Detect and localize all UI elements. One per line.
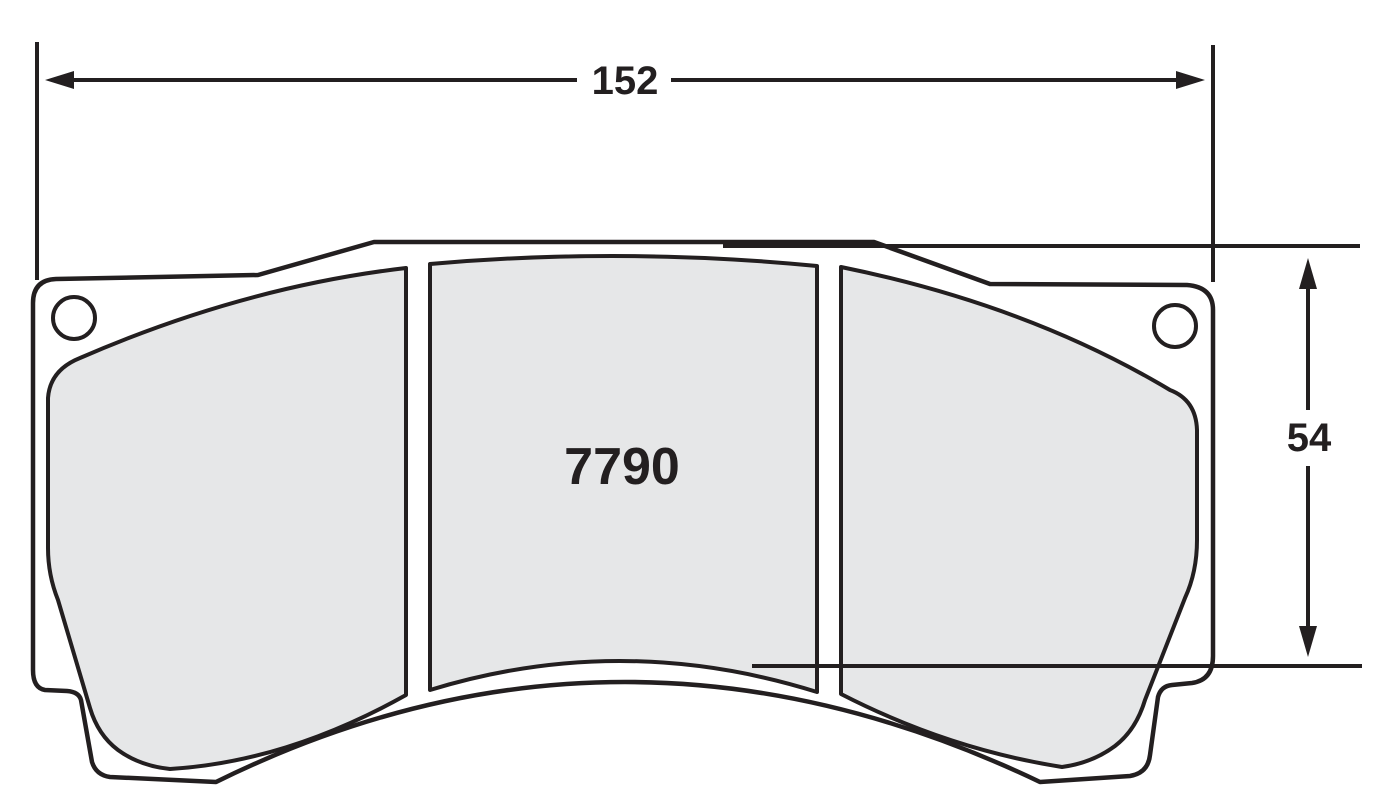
brake-pad-drawing: 7790 152 54 <box>0 0 1385 810</box>
technical-drawing-canvas: 7790 152 54 <box>0 0 1385 810</box>
mounting-hole-right <box>1154 305 1196 347</box>
brake-pad: 7790 <box>33 242 1213 782</box>
height-arrowhead-down-icon <box>1299 626 1317 657</box>
width-dimension-label: 152 <box>592 59 659 103</box>
part-number-label: 7790 <box>564 438 680 496</box>
mounting-hole-left <box>53 297 95 339</box>
width-arrowhead-right-icon <box>1176 71 1205 89</box>
height-dimension-label: 54 <box>1287 416 1332 460</box>
width-arrowhead-left-icon <box>45 71 74 89</box>
height-arrowhead-up-icon <box>1299 258 1317 289</box>
